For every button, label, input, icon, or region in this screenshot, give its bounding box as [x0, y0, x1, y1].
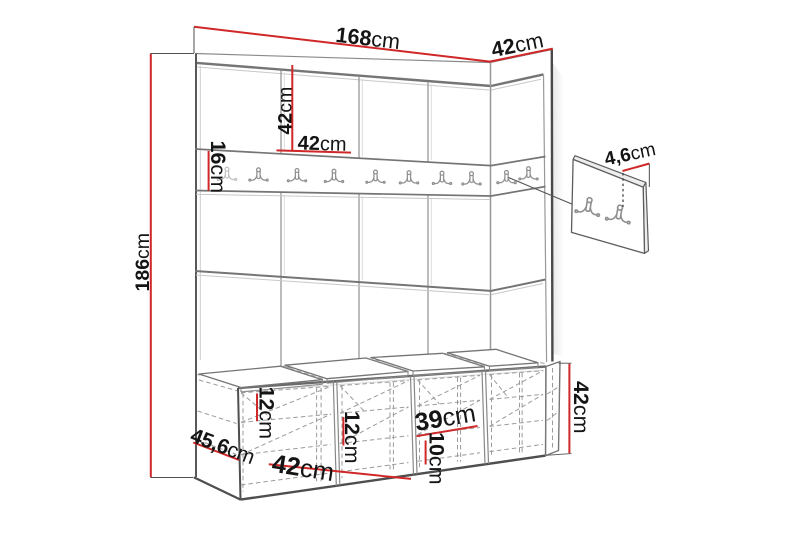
- svg-text:42cm: 42cm: [569, 381, 593, 434]
- svg-text:12cm: 12cm: [254, 387, 278, 440]
- svg-text:42cm: 42cm: [274, 87, 296, 135]
- svg-text:16cm: 16cm: [206, 141, 230, 194]
- svg-text:12cm: 12cm: [340, 411, 364, 464]
- svg-text:10cm: 10cm: [425, 432, 449, 485]
- svg-text:42cm: 42cm: [297, 133, 346, 156]
- svg-text:186cm: 186cm: [132, 233, 154, 292]
